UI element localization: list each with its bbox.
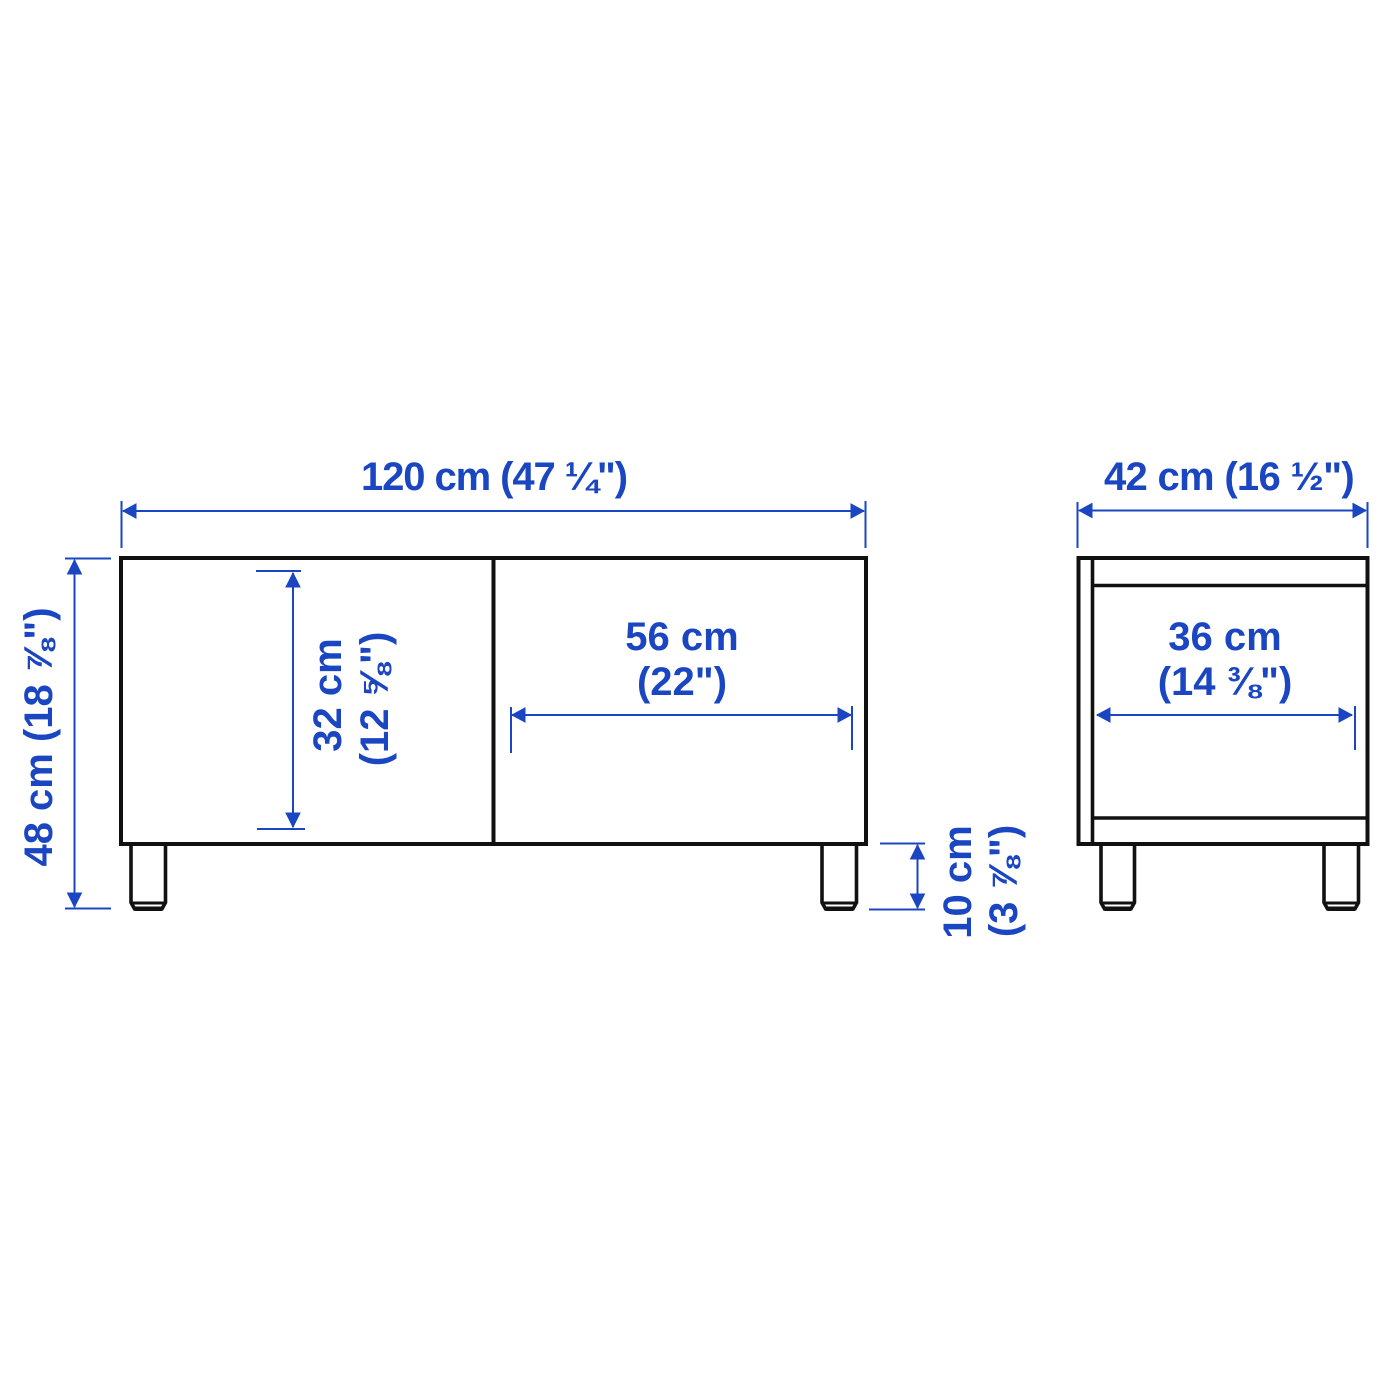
svg-text:48 cm (18 ⅞"): 48 cm (18 ⅞"): [17, 607, 61, 866]
svg-text:10 cm: 10 cm: [936, 825, 980, 938]
svg-text:42 cm (16 ½"): 42 cm (16 ½"): [1104, 455, 1354, 499]
svg-text:(22"): (22"): [637, 660, 727, 704]
svg-text:(12 ⅝"): (12 ⅝"): [353, 632, 397, 767]
svg-text:120 cm (47 ¼"): 120 cm (47 ¼"): [361, 455, 627, 499]
svg-text:(14 ⅜"): (14 ⅜"): [1158, 660, 1293, 704]
svg-text:36 cm: 36 cm: [1168, 615, 1281, 659]
svg-text:56 cm: 56 cm: [625, 615, 738, 659]
svg-text:32 cm: 32 cm: [306, 638, 350, 751]
svg-text:(3 ⅞"): (3 ⅞"): [982, 825, 1026, 937]
